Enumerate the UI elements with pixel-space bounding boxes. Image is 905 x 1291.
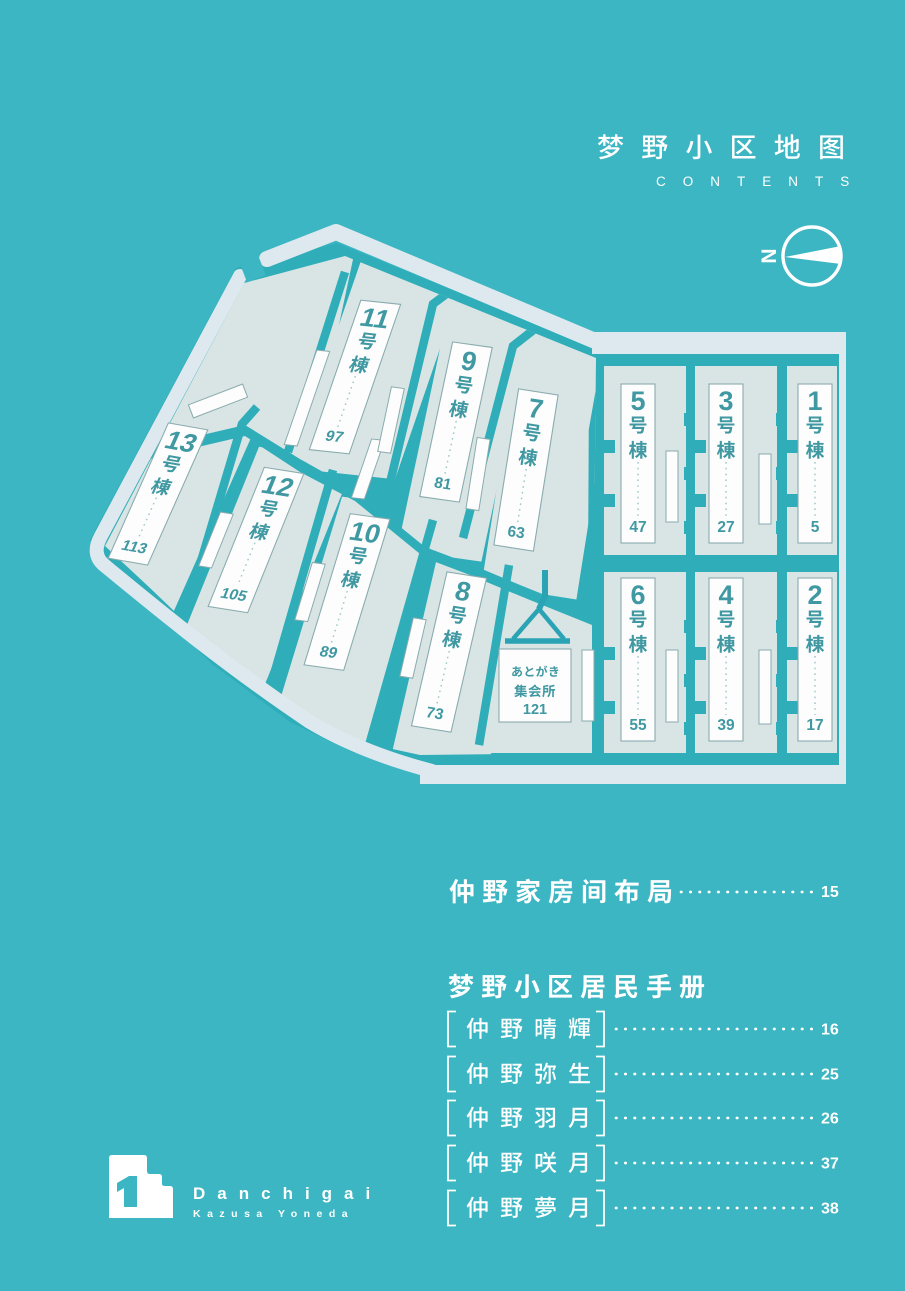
svg-text:16: 16 bbox=[821, 1022, 839, 1039]
svg-text:Danchigai: Danchigai bbox=[193, 1184, 382, 1203]
svg-text:6: 6 bbox=[630, 580, 645, 610]
svg-text:Kazusa Yoneda: Kazusa Yoneda bbox=[193, 1208, 354, 1220]
svg-text:5: 5 bbox=[630, 386, 645, 416]
svg-text:1: 1 bbox=[807, 386, 822, 416]
svg-text:3: 3 bbox=[718, 386, 733, 416]
svg-text:4: 4 bbox=[718, 580, 733, 610]
svg-text:CONTENTS: CONTENTS bbox=[656, 174, 866, 189]
svg-text:27: 27 bbox=[717, 519, 734, 536]
svg-text:55: 55 bbox=[629, 717, 647, 734]
svg-text:39: 39 bbox=[717, 717, 735, 734]
svg-text:63: 63 bbox=[506, 523, 526, 543]
svg-text:47: 47 bbox=[629, 519, 646, 536]
svg-text:121: 121 bbox=[523, 702, 547, 718]
svg-text:5: 5 bbox=[811, 519, 820, 536]
svg-text:38: 38 bbox=[821, 1201, 839, 1218]
svg-text:15: 15 bbox=[821, 884, 839, 901]
svg-text:37: 37 bbox=[821, 1156, 839, 1173]
svg-text:26: 26 bbox=[821, 1111, 839, 1128]
svg-text:17: 17 bbox=[806, 717, 823, 734]
svg-text:2: 2 bbox=[807, 580, 822, 610]
svg-text:25: 25 bbox=[821, 1067, 839, 1084]
svg-text:N: N bbox=[758, 248, 781, 263]
